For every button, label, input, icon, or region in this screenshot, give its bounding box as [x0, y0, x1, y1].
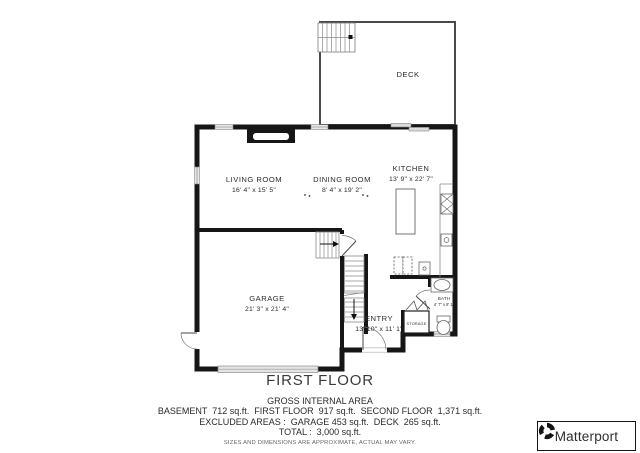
- kitchen-sink-icon: [441, 234, 452, 246]
- bath-dims: 4' 7" x 8' 1": [434, 302, 455, 307]
- kitchen-label: KITCHEN: [393, 164, 430, 173]
- garage-label: GARAGE: [249, 294, 285, 303]
- kitchen-dims: 13' 9" x 22' 7": [389, 176, 433, 183]
- gross-area-heading: GROSS INTERNAL AREA: [0, 396, 640, 406]
- bath-label: BATH: [438, 296, 450, 301]
- stove-icon: [441, 194, 453, 214]
- living-room-dims: 16' 4" x 15' 5": [232, 187, 276, 194]
- fireplace: [247, 126, 295, 143]
- deck-outline: [318, 22, 455, 125]
- garage-dims: 21' 3" x 21' 4": [245, 306, 289, 313]
- floor-areas-line: BASEMENT 712 sq.ft. FIRST FLOOR 917 sq.f…: [0, 406, 640, 416]
- deck-label: DECK: [396, 70, 419, 79]
- dining-room-label: DINING ROOM: [313, 175, 371, 184]
- living-room-label: LIVING ROOM: [226, 175, 282, 184]
- matterport-pinwheel-icon: [538, 422, 556, 440]
- dining-room-dims: 8' 4" x 19' 2": [322, 187, 362, 194]
- matterport-logo-text: Matterport: [555, 429, 619, 444]
- entry-dims: 13' 10" x 11' 1": [355, 326, 403, 333]
- deck-stairs: [318, 23, 355, 52]
- kitchen-island: [396, 189, 415, 234]
- entry-label: ENTRY: [365, 314, 393, 323]
- toilet-icon: [437, 316, 450, 335]
- garage-side-door: [181, 332, 200, 349]
- floor-title: FIRST FLOOR: [0, 372, 640, 389]
- matterport-logo-box: Matterport: [537, 421, 636, 451]
- floor-plan-page: DECK LIVING ROOM 16' 4" x 15' 5" DINING …: [0, 0, 640, 453]
- storage-label: STORAGE: [407, 322, 427, 326]
